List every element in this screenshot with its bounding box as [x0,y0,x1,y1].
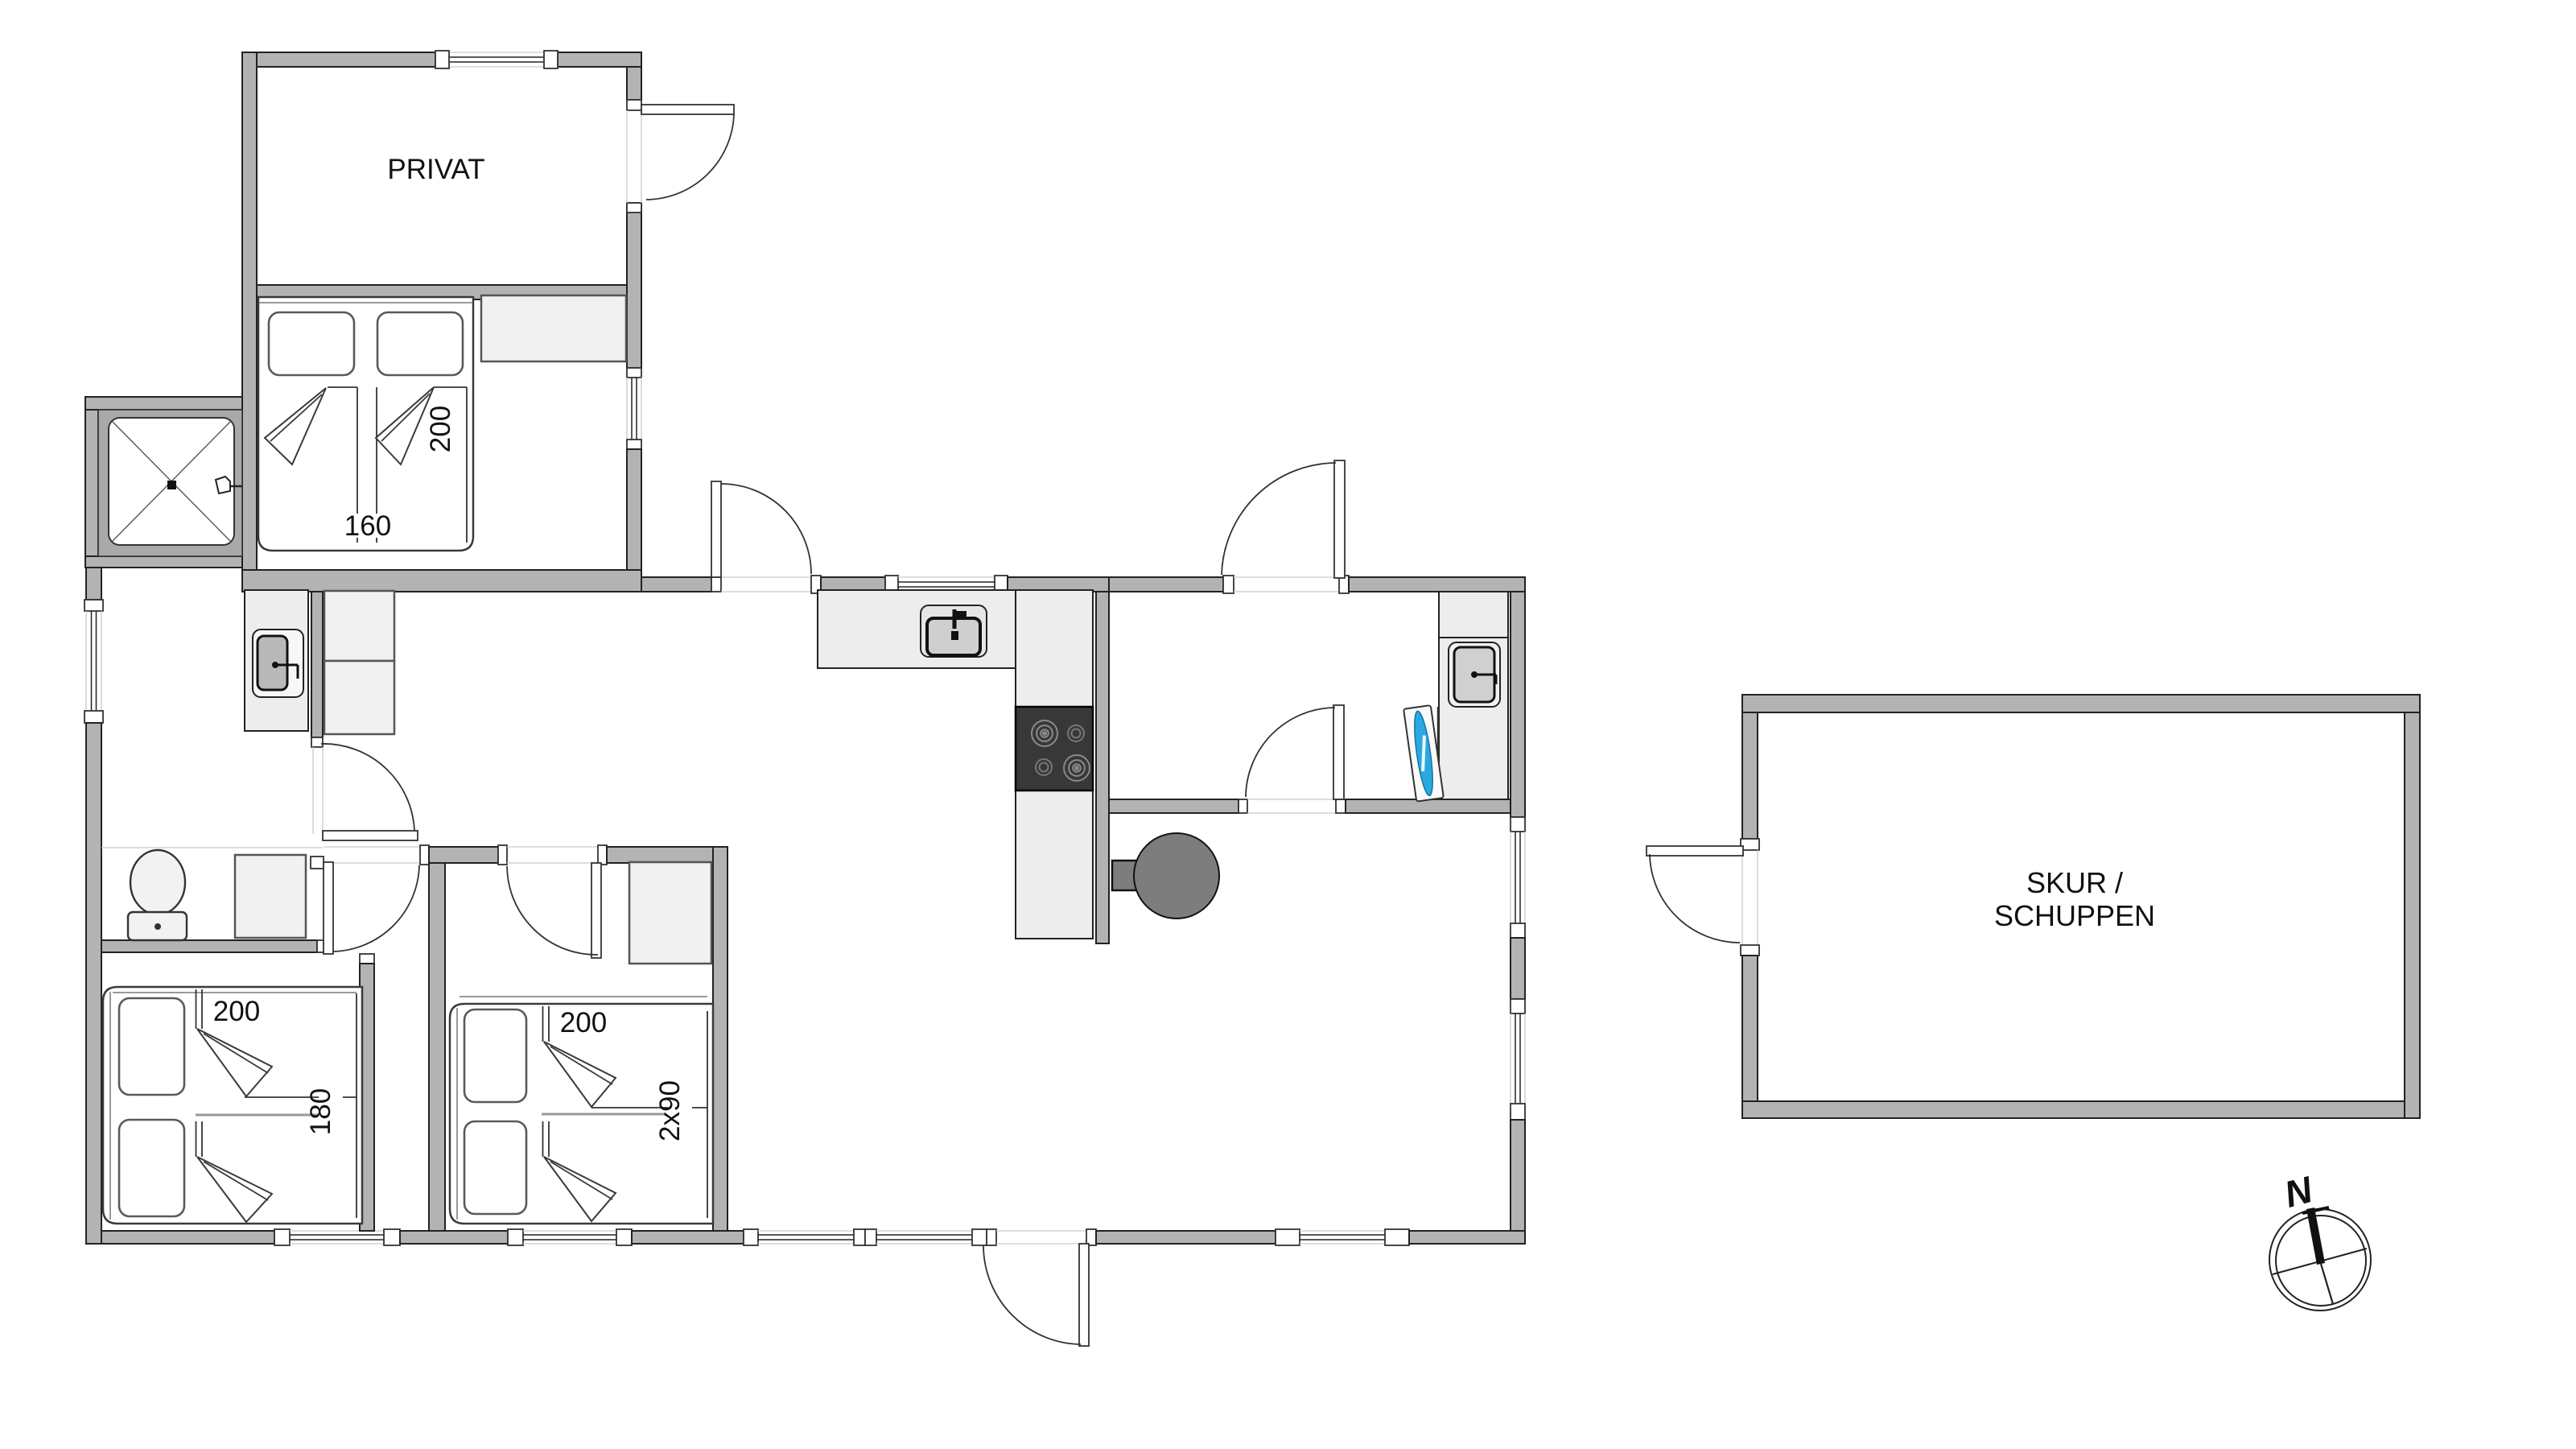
svg-text:2x90: 2x90 [654,1080,686,1141]
svg-text:SCHUPPEN: SCHUPPEN [1994,899,2155,932]
svg-text:200: 200 [560,1007,607,1038]
svg-text:SKUR /: SKUR / [2026,866,2123,899]
svg-text:PRIVAT: PRIVAT [387,154,484,185]
svg-text:200: 200 [213,996,260,1027]
svg-text:180: 180 [305,1088,336,1135]
svg-text:160: 160 [344,510,391,542]
svg-text:200: 200 [425,406,456,452]
